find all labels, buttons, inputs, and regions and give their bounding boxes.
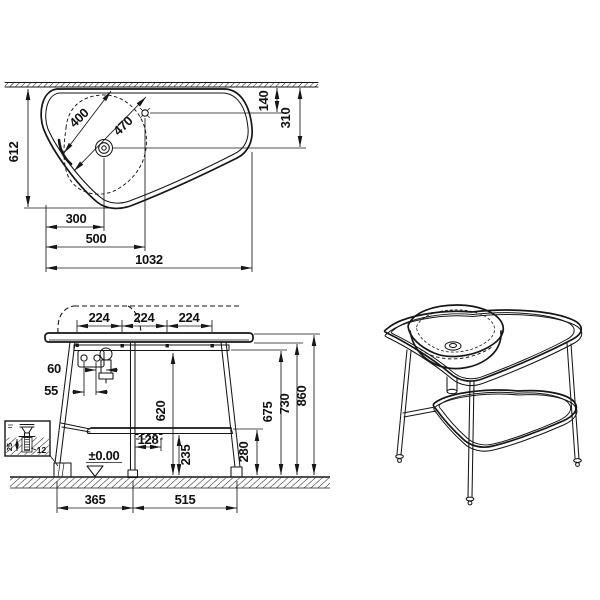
dim-clearance: 620 bbox=[153, 401, 168, 422]
fixing-screw bbox=[166, 344, 169, 347]
right-foot bbox=[231, 467, 242, 477]
fixing-screw bbox=[211, 344, 214, 347]
dim-spacing-c: 224 bbox=[179, 310, 201, 325]
plan-dimensions: 612 140 310 400 470 300 500 1032 bbox=[6, 88, 306, 272]
shelf-rail-3d bbox=[403, 407, 436, 417]
dim-adjust-offset: 12 bbox=[37, 445, 47, 455]
dim-total-width: 1032 bbox=[135, 252, 163, 267]
plan-view: 612 140 310 400 470 300 500 1032 bbox=[5, 83, 318, 273]
shelf-3d bbox=[433, 390, 577, 451]
dim-drain-left: 300 bbox=[66, 211, 87, 226]
foot-detail: 25 12 bbox=[5, 421, 58, 466]
dim-rail-height: 675 bbox=[260, 402, 275, 423]
drain-trap bbox=[99, 348, 113, 383]
drain-hole-plan bbox=[96, 140, 113, 157]
dim-trap-offset: 60 bbox=[47, 361, 61, 376]
dim-depth: 612 bbox=[6, 142, 21, 163]
dim-hole-spacing: 55 bbox=[44, 383, 58, 398]
fixing-screw bbox=[76, 344, 79, 347]
dim-total-height: 860 bbox=[294, 386, 309, 407]
counter-3d bbox=[385, 310, 582, 386]
level-label: ±0.00 bbox=[89, 448, 120, 463]
counter-outline-plan bbox=[41, 89, 252, 208]
dim-basin-inner: 400 bbox=[66, 105, 91, 130]
dim-spacing-a: 224 bbox=[89, 310, 111, 325]
fixing-screw bbox=[121, 344, 124, 347]
wall-section bbox=[5, 83, 318, 88]
dim-faucet-offset: 140 bbox=[256, 91, 271, 112]
dim-spacing-b: 224 bbox=[134, 310, 156, 325]
front-view: 224 224 224 60 55 620 128 235 bbox=[5, 306, 330, 513]
dim-underside: 730 bbox=[277, 394, 292, 415]
dim-bracket: 128 bbox=[138, 432, 159, 447]
floor-level-mark: ±0.00 bbox=[86, 448, 122, 477]
left-leg-3d bbox=[396, 350, 411, 462]
perspective-view bbox=[385, 305, 582, 505]
drawing-svg: 612 140 310 400 470 300 500 1032 bbox=[0, 0, 600, 600]
dim-shelf-front: 235 bbox=[178, 445, 193, 466]
technical-drawing-page: 612 140 310 400 470 300 500 1032 bbox=[0, 0, 600, 600]
under-counter-rail bbox=[74, 344, 229, 351]
countertop-front bbox=[45, 333, 253, 342]
dim-basin-outer: 470 bbox=[110, 113, 135, 138]
dim-faucet-left: 500 bbox=[86, 231, 107, 246]
dim-span-right: 515 bbox=[175, 492, 196, 507]
dim-shelf-height: 280 bbox=[236, 442, 251, 463]
dim-span-left: 365 bbox=[85, 492, 106, 507]
legs-front bbox=[54, 342, 242, 478]
floor bbox=[10, 477, 330, 488]
dim-drain-offset: 310 bbox=[278, 108, 293, 129]
faucet-hole-plan bbox=[140, 108, 150, 118]
dim-embed-depth: 25 bbox=[5, 443, 14, 451]
